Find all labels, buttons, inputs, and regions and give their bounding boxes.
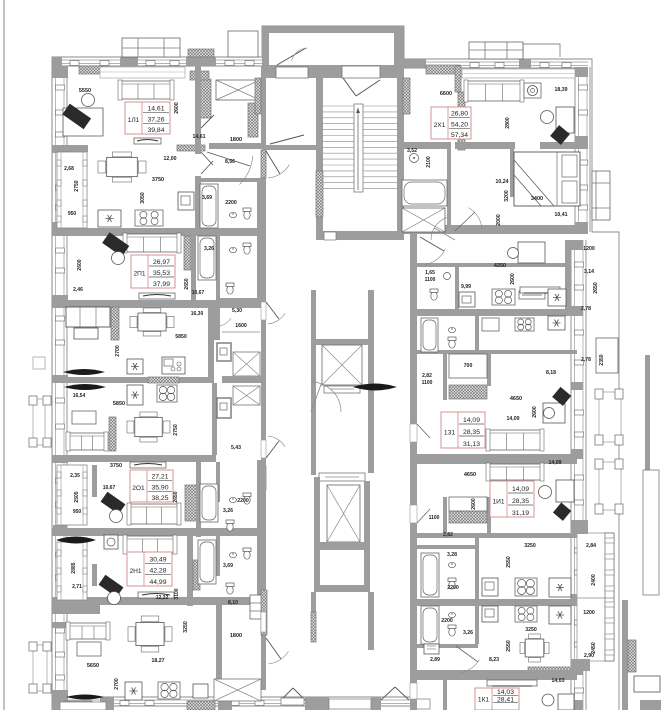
svg-text:3250: 3250 xyxy=(524,543,536,549)
svg-text:1100: 1100 xyxy=(429,515,440,521)
svg-text:14,61: 14,61 xyxy=(193,134,206,140)
svg-text:3100: 3100 xyxy=(174,588,180,599)
svg-text:2,46: 2,46 xyxy=(73,287,83,293)
svg-text:28,35: 28,35 xyxy=(512,498,529,505)
svg-text:8,56: 8,56 xyxy=(225,159,235,165)
svg-text:54,20: 54,20 xyxy=(451,121,468,128)
svg-text:39,84: 39,84 xyxy=(147,127,164,134)
svg-text:2505: 2505 xyxy=(74,491,80,502)
svg-text:14,09: 14,09 xyxy=(463,417,480,424)
svg-text:2,78: 2,78 xyxy=(581,357,591,363)
svg-text:2550: 2550 xyxy=(506,640,512,652)
svg-text:1600: 1600 xyxy=(235,323,247,329)
svg-text:5550: 5550 xyxy=(79,88,91,94)
svg-text:2Н1: 2Н1 xyxy=(129,568,141,575)
svg-text:2650: 2650 xyxy=(184,278,190,289)
svg-text:2200: 2200 xyxy=(441,618,453,624)
svg-text:2650: 2650 xyxy=(173,491,179,502)
svg-text:3200: 3200 xyxy=(504,190,510,202)
svg-text:2550: 2550 xyxy=(506,556,512,568)
svg-text:5850: 5850 xyxy=(113,401,125,407)
svg-text:3050: 3050 xyxy=(140,192,146,204)
svg-text:14,09: 14,09 xyxy=(507,416,520,422)
svg-text:12,22: 12,22 xyxy=(156,595,169,601)
svg-text:3750: 3750 xyxy=(152,177,164,183)
svg-text:18,39: 18,39 xyxy=(555,87,568,93)
svg-text:38,25: 38,25 xyxy=(151,495,168,502)
svg-text:4350: 4350 xyxy=(494,263,506,269)
svg-text:31,13: 31,13 xyxy=(463,441,480,448)
svg-text:3400: 3400 xyxy=(531,196,543,202)
svg-text:2750: 2750 xyxy=(74,180,80,191)
svg-text:2200: 2200 xyxy=(237,498,249,504)
svg-text:2600: 2600 xyxy=(471,498,477,510)
svg-text:2,82: 2,82 xyxy=(422,373,432,379)
svg-text:2,71: 2,71 xyxy=(72,584,82,590)
svg-text:2700: 2700 xyxy=(114,678,120,690)
svg-text:2600: 2600 xyxy=(77,259,83,270)
svg-text:3750: 3750 xyxy=(110,463,122,469)
svg-text:37,99: 37,99 xyxy=(153,281,170,288)
svg-text:2800: 2800 xyxy=(505,117,511,129)
svg-text:3,69: 3,69 xyxy=(223,563,233,569)
svg-text:950: 950 xyxy=(68,211,77,217)
svg-text:27,21: 27,21 xyxy=(151,474,168,481)
svg-text:16,30: 16,30 xyxy=(191,311,204,317)
svg-text:3,26: 3,26 xyxy=(463,630,473,636)
svg-text:28,41: 28,41 xyxy=(497,696,514,703)
svg-text:2,82: 2,82 xyxy=(443,532,453,538)
svg-text:14,09: 14,09 xyxy=(549,460,562,466)
svg-text:5850: 5850 xyxy=(175,334,187,340)
svg-text:1Л1: 1Л1 xyxy=(128,117,140,124)
svg-text:42,28: 42,28 xyxy=(149,568,166,575)
svg-text:3250: 3250 xyxy=(525,627,537,633)
svg-text:2X1: 2X1 xyxy=(434,122,446,129)
svg-text:2200: 2200 xyxy=(225,200,237,206)
svg-text:1200: 1200 xyxy=(583,610,595,616)
svg-text:2600: 2600 xyxy=(510,273,516,285)
svg-text:2П1: 2П1 xyxy=(133,270,145,277)
svg-text:10,67: 10,67 xyxy=(103,485,116,491)
svg-text:2750: 2750 xyxy=(173,424,179,436)
svg-text:1К1: 1К1 xyxy=(478,697,490,704)
svg-text:3,26: 3,26 xyxy=(204,246,214,252)
svg-text:2600: 2600 xyxy=(532,406,538,418)
svg-text:9,99: 9,99 xyxy=(461,284,471,290)
svg-text:31,19: 31,19 xyxy=(512,510,529,517)
svg-text:2100: 2100 xyxy=(426,156,432,168)
svg-text:2400: 2400 xyxy=(591,574,597,586)
svg-text:37,26: 37,26 xyxy=(147,116,164,123)
svg-text:1,65: 1,65 xyxy=(425,270,435,276)
svg-text:6600: 6600 xyxy=(440,91,452,97)
svg-text:950: 950 xyxy=(73,509,82,515)
svg-text:18,27: 18,27 xyxy=(152,658,165,664)
svg-text:14,03: 14,03 xyxy=(497,689,514,696)
svg-text:2,89: 2,89 xyxy=(430,657,440,663)
svg-text:8,23: 8,23 xyxy=(489,657,499,663)
svg-text:2О1: 2О1 xyxy=(132,485,145,492)
svg-text:4650: 4650 xyxy=(464,472,476,478)
svg-text:2,68: 2,68 xyxy=(64,166,74,172)
svg-text:26,80: 26,80 xyxy=(451,111,468,118)
svg-text:14,03: 14,03 xyxy=(552,678,565,684)
svg-text:35,90: 35,90 xyxy=(151,484,168,491)
svg-text:8,18: 8,18 xyxy=(546,370,556,376)
svg-text:5,43: 5,43 xyxy=(231,445,241,451)
svg-text:2650: 2650 xyxy=(593,282,599,294)
svg-text:1З1: 1З1 xyxy=(444,429,456,436)
svg-text:2885: 2885 xyxy=(71,562,77,573)
svg-text:26,97: 26,97 xyxy=(153,259,170,266)
svg-text:3,14: 3,14 xyxy=(584,269,594,275)
svg-text:3,26: 3,26 xyxy=(223,508,233,514)
svg-text:28,35: 28,35 xyxy=(463,429,480,436)
svg-text:2700: 2700 xyxy=(115,345,121,357)
svg-text:10,41: 10,41 xyxy=(555,212,568,218)
svg-text:35,53: 35,53 xyxy=(153,270,170,277)
svg-text:30,49: 30,49 xyxy=(149,556,166,563)
svg-text:5650: 5650 xyxy=(87,663,99,669)
svg-text:10,67: 10,67 xyxy=(192,290,205,296)
svg-text:3,28: 3,28 xyxy=(447,552,457,558)
svg-text:2,35: 2,35 xyxy=(70,473,80,479)
svg-text:16,54: 16,54 xyxy=(73,393,86,399)
svg-text:2,78: 2,78 xyxy=(581,306,591,312)
svg-text:1И1: 1И1 xyxy=(492,498,504,505)
svg-text:700: 700 xyxy=(464,363,473,369)
svg-text:3,69: 3,69 xyxy=(202,195,212,201)
svg-text:5,30: 5,30 xyxy=(232,308,242,314)
svg-text:2200: 2200 xyxy=(447,585,459,591)
svg-text:3,52: 3,52 xyxy=(407,148,417,154)
svg-text:2350: 2350 xyxy=(599,354,605,365)
svg-text:57,34: 57,34 xyxy=(451,132,468,139)
svg-text:2600: 2600 xyxy=(174,102,180,114)
svg-text:1800: 1800 xyxy=(230,633,242,639)
svg-text:3250: 3250 xyxy=(183,621,189,633)
svg-text:1100: 1100 xyxy=(425,277,436,283)
svg-text:10,24: 10,24 xyxy=(496,179,509,185)
svg-text:4650: 4650 xyxy=(510,396,522,402)
svg-text:14,09: 14,09 xyxy=(512,486,529,493)
svg-text:1200: 1200 xyxy=(583,246,595,252)
svg-text:12,00: 12,00 xyxy=(164,156,177,162)
svg-text:2000: 2000 xyxy=(496,214,502,226)
svg-text:1100: 1100 xyxy=(422,380,433,386)
svg-text:1800: 1800 xyxy=(230,137,242,143)
svg-text:8,10: 8,10 xyxy=(228,600,238,606)
svg-text:14,61: 14,61 xyxy=(147,106,164,113)
svg-text:2,84: 2,84 xyxy=(586,543,596,549)
svg-text:2,90: 2,90 xyxy=(584,653,594,659)
svg-text:44,99: 44,99 xyxy=(149,579,166,586)
